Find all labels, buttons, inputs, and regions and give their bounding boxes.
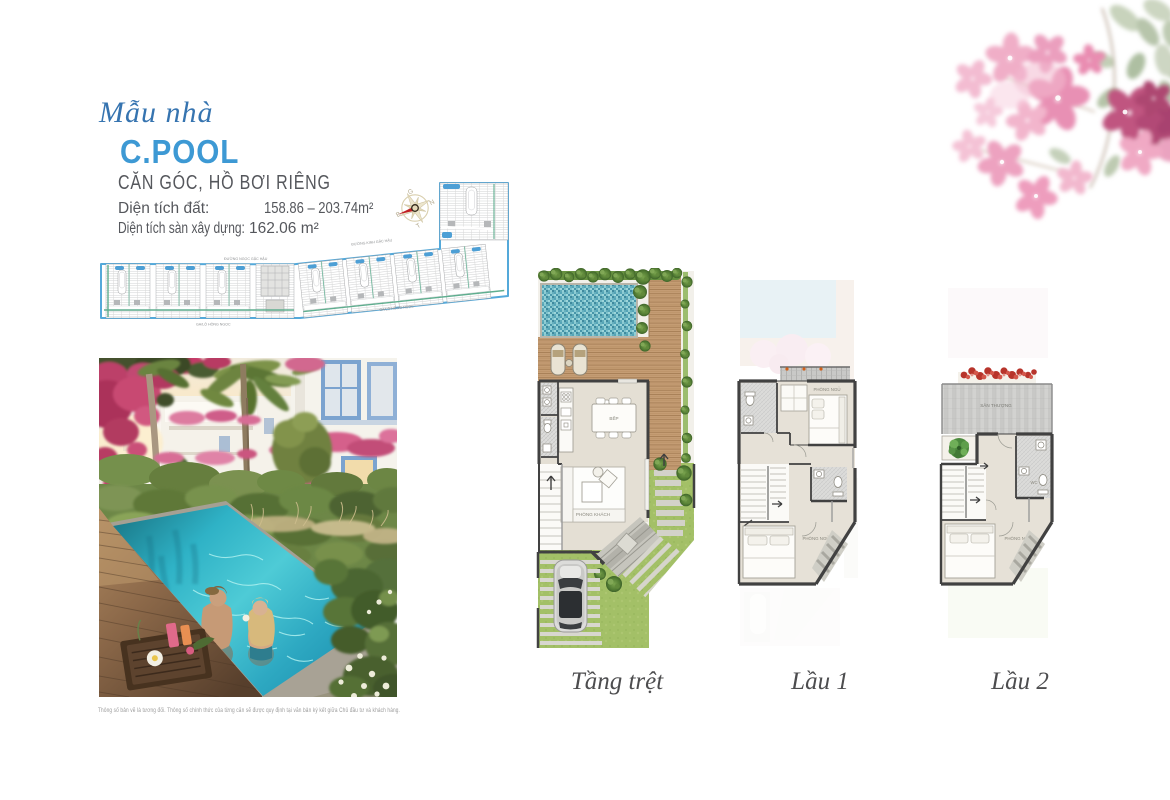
svg-text:BẾP: BẾP	[609, 415, 618, 421]
svg-text:ĐƯỜNG KINH GẶC HẬU: ĐƯỜNG KINH GẶC HẬU	[351, 237, 393, 246]
svg-text:PHÒNG NGỦ: PHÒNG NGỦ	[802, 536, 829, 541]
svg-text:SÂN THƯỢNG: SÂN THƯỢNG	[980, 402, 1012, 408]
svg-text:ĐƯỜNG NGỌC GẶC HẬU: ĐƯỜNG NGỌC GẶC HẬU	[224, 256, 268, 261]
svg-text:PHÒNG NGỦ: PHÒNG NGỦ	[813, 387, 840, 392]
svg-text:WC: WC	[1031, 480, 1038, 485]
svg-text:PHÒNG KHÁCH: PHÒNG KHÁCH	[576, 511, 610, 517]
svg-text:GA/LỘ HỒNG NGỌC: GA/LỘ HỒNG NGỌC	[196, 322, 231, 327]
